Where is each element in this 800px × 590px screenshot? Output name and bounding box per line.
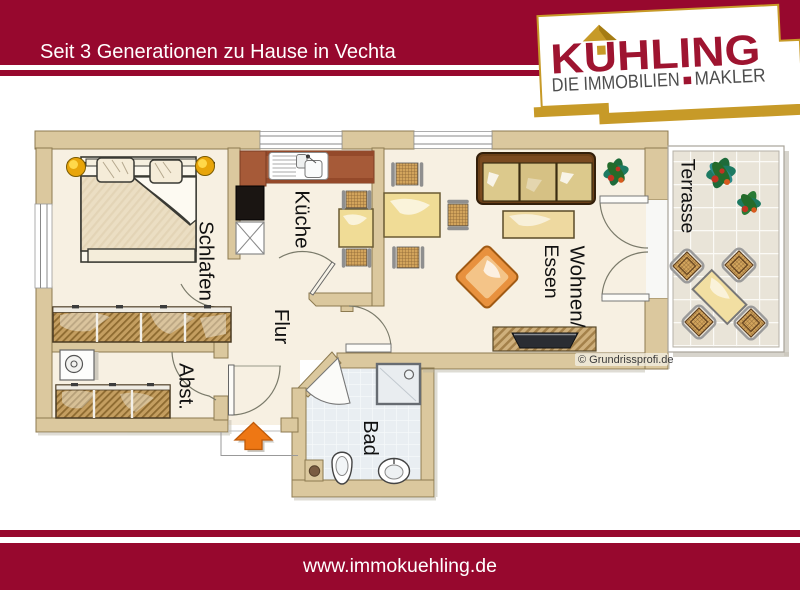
svg-text:Terrasse: Terrasse: [677, 159, 699, 234]
svg-text:© Grundrissprofi.de: © Grundrissprofi.de: [578, 354, 674, 366]
svg-text:Bad: Bad: [359, 420, 381, 456]
svg-text:Schlafen: Schlafen: [195, 221, 218, 301]
svg-text:Küche: Küche: [291, 190, 314, 248]
svg-text:Essen: Essen: [540, 244, 562, 298]
svg-text:Wohnen/: Wohnen/: [566, 246, 589, 328]
svg-text:Flur: Flur: [270, 309, 293, 344]
svg-text:Abst.: Abst.: [175, 363, 198, 410]
svg-text:MAKLER: MAKLER: [694, 65, 766, 89]
